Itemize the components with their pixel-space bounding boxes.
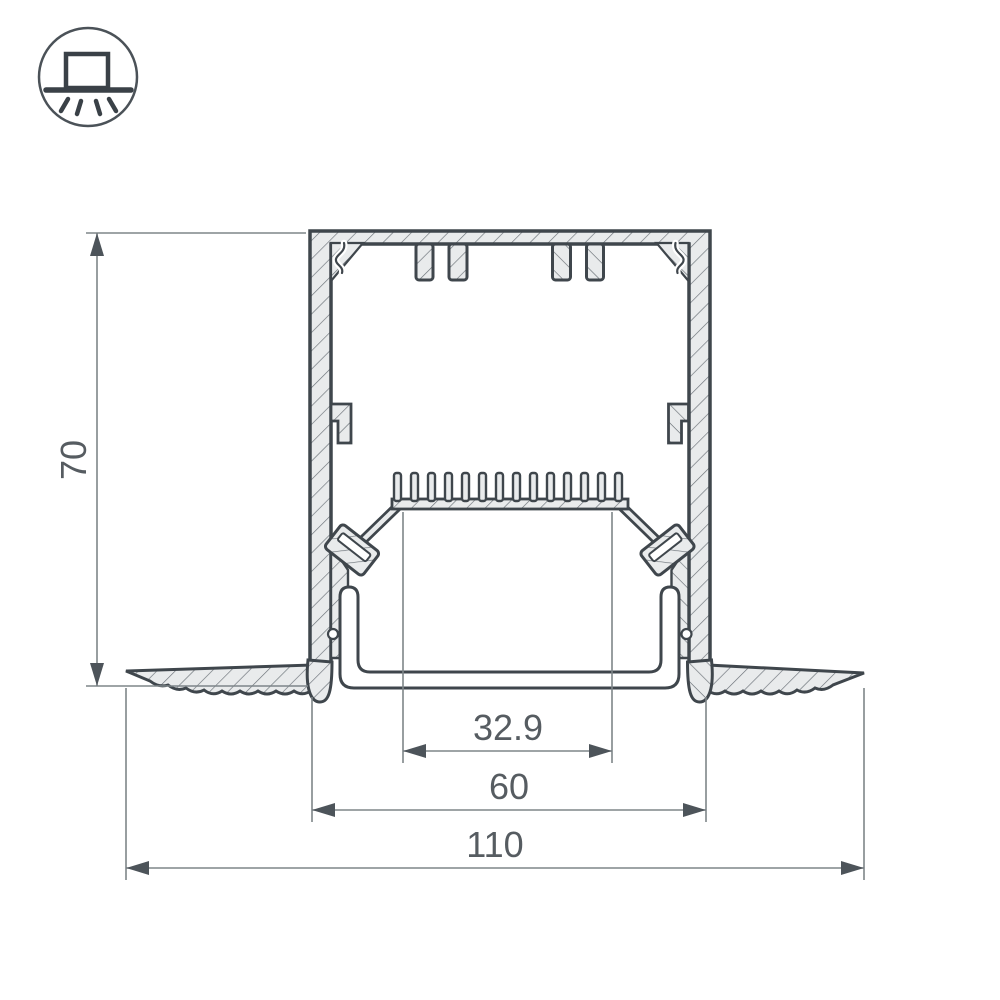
profile-frame: [310, 231, 710, 668]
dimension-annotations: [86, 233, 864, 880]
diffuser-tray: [340, 587, 679, 688]
dimension-arrows: [90, 233, 864, 875]
dim-label-body-width: 60: [489, 766, 529, 807]
dim-label-overall-width: 110: [466, 824, 523, 865]
heatsink-comb: [392, 473, 628, 509]
heatsink-fins: [394, 473, 622, 501]
trim-wing-left: [126, 665, 312, 694]
trim-wing-right: [707, 665, 864, 694]
technical-drawing-page: 70 32.9 60 110: [0, 0, 1000, 1000]
recessed-mount-light-icon: [39, 28, 137, 126]
dim-label-height: 70: [53, 440, 94, 480]
profile-cross-section-drawing: 70 32.9 60 110: [0, 0, 1000, 1000]
dim-label-opening-width: 32.9: [473, 707, 543, 748]
